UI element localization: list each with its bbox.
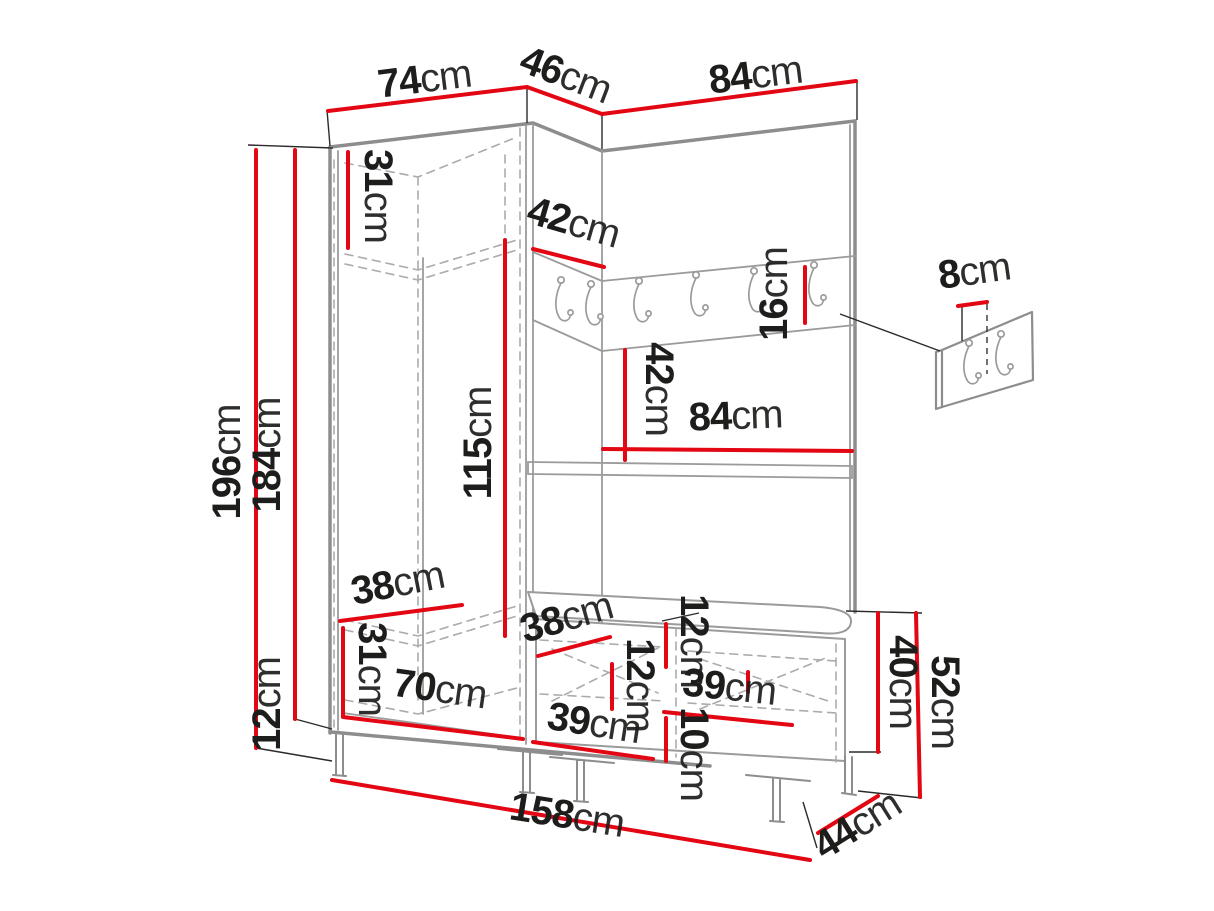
coat-hook-icon [556,277,573,321]
dimension-label-left-wing-width: 74cm [375,52,473,107]
top-edge [330,121,855,151]
dimension-label-wardrobe-inner-width: 70cm [390,661,489,718]
dimension-label-base-depth: 44cm [806,781,909,868]
shelf [528,462,852,478]
dimension-label-leg-height: 12cm [245,657,289,751]
coat-hook-icon [809,262,826,306]
dimension-label-shelf-width: 84cm [688,392,783,439]
dimension-label-bench-total-height: 52cm [923,655,967,749]
dimension-label-right-wing-width: 84cm [706,48,804,103]
dimension-labels: 74cm46cm84cm196cm184cm12cm31cm42cm16cm8c… [205,38,1013,869]
dimension-label-rail-to-shelf: 42cm [637,342,681,436]
dimension-label-hanging-space-height: 115cm [456,387,500,500]
dimension-label-corner-rail-width: 42cm [522,188,624,256]
dimension-label-carcass-height: 184cm [245,397,289,512]
dim-line-84cm-shelf [603,449,852,451]
dim-line-8cm [958,302,987,306]
dimension-label-bench-body-height: 40cm [881,635,925,729]
diagram-canvas: 74cm46cm84cm196cm184cm12cm31cm42cm16cm8c… [0,0,1214,911]
accessory-hook-panel [936,312,1033,409]
coat-hook-icon [691,272,708,316]
dimension-label-bench-bottom-gap: 10cm [672,707,716,801]
dimension-label-bottom-compartment-height: 31cm [350,622,394,716]
dimension-diagram: 74cm46cm84cm196cm184cm12cm31cm42cm16cm8c… [0,0,1214,911]
dim-line-42cm-corner [533,249,604,267]
dimension-label-top-shelf-compartment: 31cm [356,149,400,243]
dimension-label-total-height: 196cm [205,404,249,519]
coat-hook-icon [634,278,651,322]
dimension-label-panel-hook-offset: 8cm [935,244,1013,298]
dimension-label-rail-strip-height: 16cm [752,247,796,341]
coat-hook-icon [586,281,603,325]
dimension-label-wardrobe-shelf-depth: 38cm [347,553,447,614]
dimension-label-total-width: 158cm [507,784,628,845]
